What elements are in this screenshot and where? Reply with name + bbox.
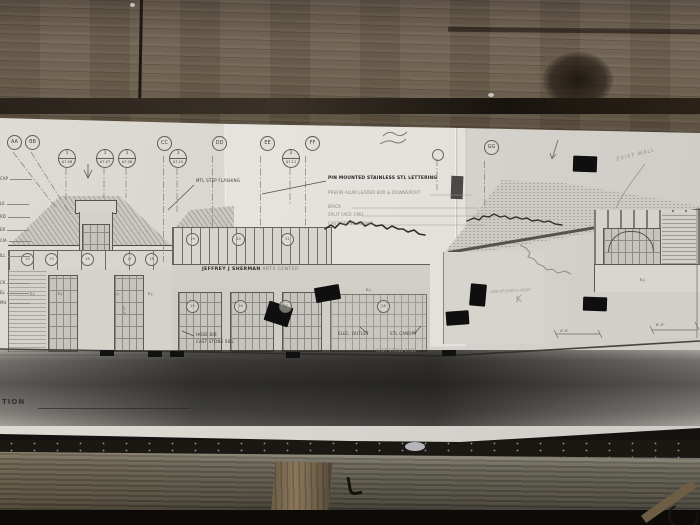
annotation-cast-stone-coping: CAST STONE COPING	[328, 221, 374, 226]
title-underline	[38, 408, 190, 409]
window-tag: 17	[123, 253, 136, 266]
detail-ref-bubble: 1 A7.08	[58, 149, 76, 168]
detail-ref-bubble: 1 A7.07	[96, 149, 114, 168]
annotation-mtl-step-flashing: MTL STEP FLASHING	[196, 178, 240, 183]
annotation-leader-box: PREFIN ALUM LEADER BOX & DOWNSPOUT	[328, 190, 420, 195]
black-tab	[100, 350, 114, 356]
wood-plank-top	[0, 0, 700, 138]
ej-label: E.J.	[640, 278, 646, 282]
black-tape	[469, 283, 487, 306]
window-tag: 28	[377, 300, 390, 313]
detail-ref-number: 1	[119, 150, 135, 159]
detail-ref-bubble: 2 A7.11	[282, 149, 300, 168]
edge-label: ER	[0, 227, 29, 232]
grid-bubble-FF: FF	[305, 136, 320, 151]
ej-label: E.J.	[114, 292, 120, 296]
detail-ref-bubble: 1 A7.08	[118, 149, 136, 168]
black-tab	[286, 352, 300, 358]
sheet-title-partial: TION	[2, 398, 25, 406]
ej-label: E.J.	[366, 288, 372, 292]
window-tag: 26	[234, 300, 247, 313]
edge-label-cap: CAP	[0, 176, 32, 181]
ej-label: E.J.	[58, 292, 64, 296]
grid-bubble-CC: CC	[157, 136, 172, 151]
detail-ref-sheet: A7.08	[119, 159, 135, 166]
black-tab	[148, 351, 162, 357]
annotation-stl-canopy: STL CANOPY	[390, 331, 417, 336]
annotation-pin-mounted-lettering: PIN MOUNTED STAINLESS STL LETTERING	[328, 176, 437, 181]
edge-label: LE	[0, 201, 29, 206]
black-tape	[583, 297, 607, 312]
unlabeled-ref-circle	[432, 149, 444, 161]
annotation-cast-stone-sill: CAST STONE SILL	[196, 339, 234, 344]
grid-bubble-AA: AA	[7, 135, 22, 150]
window-tag: 21	[281, 233, 294, 246]
elevation-drawing-sheet: AA BB CC DD EE FF GG 1 A7.08 1 A7.07 1 A…	[0, 112, 700, 444]
grid-bubble-BB: BB	[25, 135, 40, 150]
annotation-brick: BRICK	[328, 204, 341, 209]
detail-ref-sheet: A7.11	[283, 159, 299, 166]
paper-scrap	[405, 442, 425, 451]
dimension-label: 2'-0"	[122, 306, 126, 315]
detail-ref-number: 1	[170, 150, 186, 159]
black-tab	[170, 351, 184, 357]
paper-shadow-band	[0, 350, 700, 426]
plank-seam-vertical	[138, 0, 143, 112]
detail-ref-sheet: A7.15	[170, 159, 186, 166]
window-tag: 19	[186, 233, 199, 246]
detail-ref-number: 2	[283, 150, 299, 159]
window-tag: 27	[279, 300, 292, 313]
black-tape	[446, 310, 470, 326]
window-tag: 20	[232, 233, 245, 246]
annotation-elec-outlet: ELEC. OUTLET	[338, 331, 369, 336]
window-tag: 16	[81, 253, 94, 266]
detail-ref-sheet: A7.08	[59, 159, 75, 166]
annotation-split-face-cmu: SPLIT FACE CMU	[328, 212, 363, 217]
photo-architectural-drawing-on-wood: AA BB CC DD EE FF GG 1 A7.08 1 A7.07 1 A…	[0, 0, 700, 525]
black-tape	[573, 156, 598, 173]
annotation-cast-stone-base: CAST STONE BASE	[376, 348, 416, 353]
detail-ref-number: 1	[97, 150, 113, 159]
annotation-hose-bib: HOSE BIB	[196, 332, 217, 337]
ej-label: E.J.	[30, 292, 36, 296]
building-sign-primary: JEFFREY J SHERMAN	[202, 267, 261, 272]
dimension-label: 6'-0"	[656, 323, 665, 327]
window-tag: 25	[186, 300, 199, 313]
paint-speck	[488, 93, 494, 97]
grid-bubble-EE: EE	[260, 136, 275, 151]
black-tab	[442, 350, 456, 356]
edge-label: RD	[0, 214, 30, 219]
detail-ref-number: 1	[59, 150, 75, 159]
dimension-label: 4'-0"	[560, 329, 569, 333]
ej-label: E.J.	[148, 292, 154, 296]
paint-speck	[130, 3, 135, 7]
plank-seam-right	[448, 27, 700, 35]
window-tag: 18	[145, 253, 158, 266]
window-tag: 15	[45, 253, 58, 266]
edge-label: ILL	[0, 253, 30, 258]
edge-label: CIA	[0, 238, 31, 243]
building-sign-text: JEFFREY J SHERMAN ARTS CENTER	[202, 267, 299, 272]
edge-label: MU	[0, 300, 30, 305]
detail-ref-bubble: 1 A7.15	[169, 149, 187, 168]
grid-bubble-GG: GG	[484, 140, 499, 155]
edge-label: EL	[0, 290, 29, 295]
beam-shadow	[0, 510, 700, 525]
grid-bubble-DD: DD	[212, 136, 227, 151]
building-sign-secondary: ARTS CENTER	[261, 267, 299, 272]
wood-knot	[543, 52, 613, 108]
edge-label: CK	[0, 280, 29, 285]
detail-ref-sheet: A7.07	[97, 159, 113, 166]
